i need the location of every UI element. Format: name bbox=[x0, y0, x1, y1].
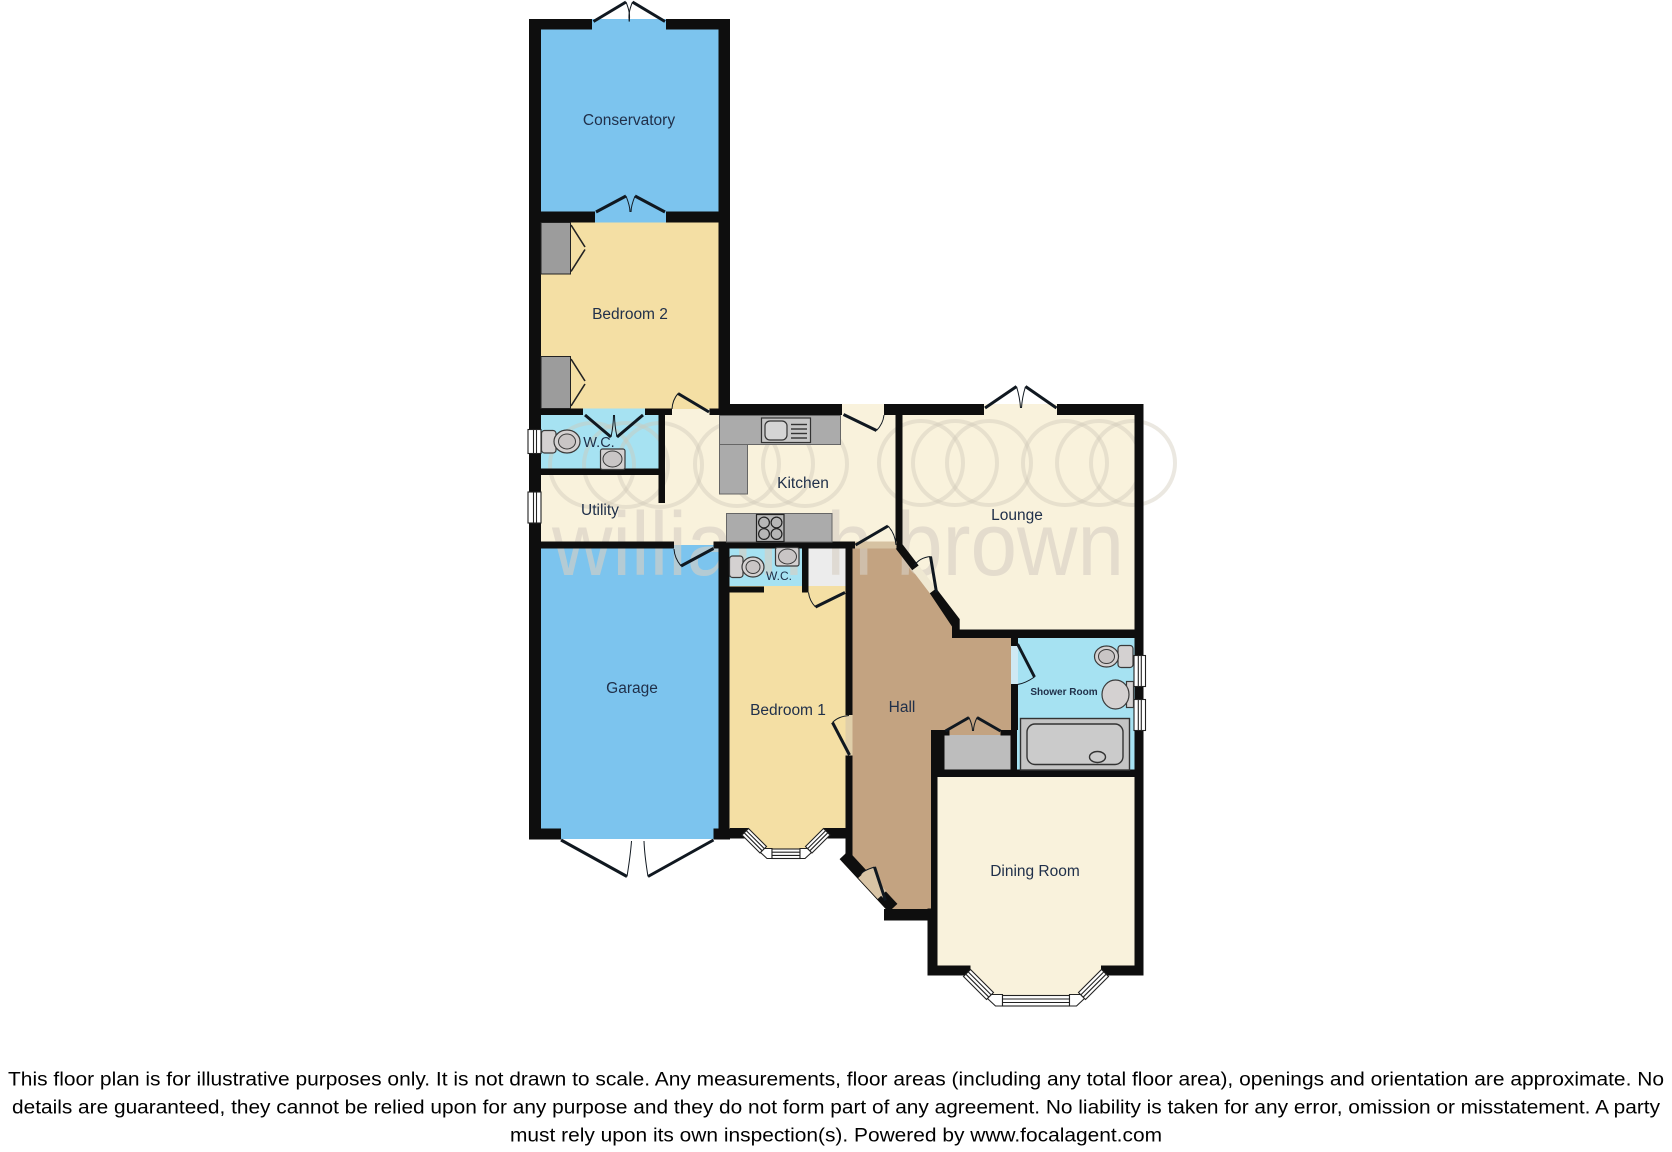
svg-text:W.C.: W.C. bbox=[766, 569, 792, 583]
svg-text:must rely upon its own inspect: must rely upon its own inspection(s). Po… bbox=[510, 1126, 1162, 1147]
svg-text:This floor plan is for illustr: This floor plan is for illustrative purp… bbox=[8, 1070, 1664, 1091]
svg-text:Dining Room: Dining Room bbox=[990, 863, 1080, 880]
svg-text:Bedroom 2: Bedroom 2 bbox=[592, 306, 668, 323]
svg-text:Conservatory: Conservatory bbox=[583, 112, 675, 129]
svg-text:Kitchen: Kitchen bbox=[777, 475, 829, 492]
svg-text:Utility: Utility bbox=[581, 502, 619, 519]
svg-text:W.C.: W.C. bbox=[583, 435, 614, 451]
svg-text:Shower Room: Shower Room bbox=[1030, 687, 1097, 698]
svg-text:Hall: Hall bbox=[889, 699, 916, 716]
svg-text:Bedroom 1: Bedroom 1 bbox=[750, 702, 826, 719]
svg-text:Garage: Garage bbox=[606, 680, 658, 697]
svg-text:Lounge: Lounge bbox=[991, 507, 1043, 524]
svg-text:details are guaranteed, they c: details are guaranteed, they cannot be r… bbox=[12, 1098, 1661, 1119]
